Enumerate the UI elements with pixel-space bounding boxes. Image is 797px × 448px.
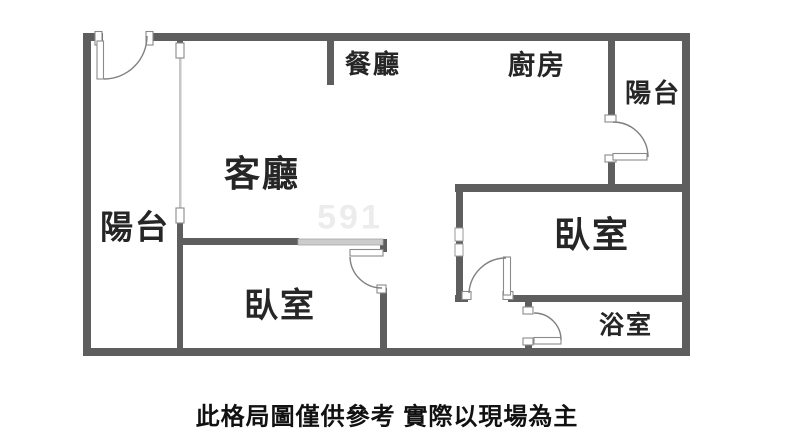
watermark: 591 [317,199,383,238]
kitchen-door-leaf [613,154,647,161]
outer-wall-left [83,33,91,356]
sliding-door-line [179,57,182,209]
closet-track-segment [298,239,383,245]
outer-wall-right [682,33,690,356]
entry-door-swing-arc [104,36,147,79]
door-kitchen-balcony [605,115,648,162]
bedroom-left-top-wall [177,238,299,245]
kitchen-door-swing-arc [613,122,648,157]
kitchen-door-jamb-top [605,115,616,122]
bedroom-left-door-jamb [377,285,386,293]
bathroom-door-swing-arc [534,313,561,340]
window-pane-upper [455,228,463,241]
label-bedroom-right: 臥室 [554,217,630,253]
bathroom-door-jamb-bottom [523,338,533,345]
label-balcony-right: 陽台 [625,80,681,106]
kitchen-balcony-wall-lower [608,161,615,188]
dining-kitchen-stub-wall [327,41,334,85]
door-entry-top-left [95,32,153,80]
bedroom-left-door-swing-arc [350,257,382,288]
entry-door-leaf [97,41,104,79]
bedroom-left-right-wall [380,288,387,350]
label-living-room: 客廳 [224,156,300,192]
closet-light-wall [298,239,383,245]
label-bathroom: 浴室 [599,314,653,339]
door-bathroom [523,307,561,345]
floorplan-canvas: 591 餐廳 廚房 陽台 客廳 陽台 臥室 臥室 浴室 此格局圖僅供參考 實際以… [0,0,797,448]
door-bedroom-left [350,250,386,294]
label-kitchen: 廚房 [508,53,566,80]
bathroom-door-leaf [534,338,561,345]
outer-wall-top [146,33,690,41]
window-pane-lower [455,244,463,256]
sliding-door-jamb-bottom [176,208,184,223]
bedroom-left-door-leaf [350,250,383,257]
kitchen-balcony-wall-upper [608,41,615,118]
label-balcony-left: 陽台 [100,211,170,244]
label-dining-room: 餐廳 [345,51,401,77]
sliding-door-jamb-top [176,43,184,58]
bedroom-right-door-leaf [504,257,511,295]
bedroom-right-door-swing-arc [469,258,506,293]
disclaimer-caption: 此格局圖僅供參考 實際以現場為主 [196,397,579,432]
label-bedroom-left: 臥室 [244,289,316,323]
bathroom-door-jamb-top [523,307,533,314]
sliding-door-balcony-left [176,43,184,223]
bedroom-right-top-wall [455,184,690,192]
door-bedroom-right [462,257,513,300]
bedroom-right-bottom-wall-right [508,295,690,302]
